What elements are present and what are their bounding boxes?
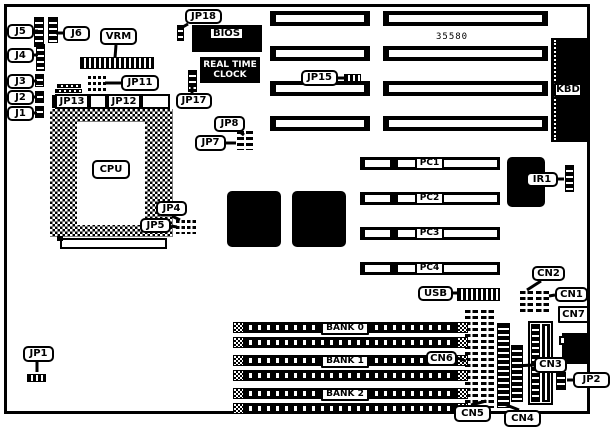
simm-clip-left xyxy=(233,370,244,381)
pci-slot-stripe xyxy=(365,195,390,202)
label-j1: J1 xyxy=(7,106,34,121)
label-jp17: JP17 xyxy=(176,93,212,109)
qfp-chip-1 xyxy=(227,191,281,247)
cpu-top-strip-box-1 xyxy=(89,94,107,109)
isa-slot-stripe xyxy=(276,15,364,22)
simm-clip-right xyxy=(457,322,468,333)
label-jp13: JP13 xyxy=(55,94,89,109)
label-cn1: CN1 xyxy=(555,287,588,302)
simm-clip-right xyxy=(457,370,468,381)
j4-pin-header xyxy=(36,44,45,71)
jp4-header xyxy=(187,220,196,234)
isa-slot-stripe xyxy=(389,15,542,22)
simm-clip-left xyxy=(233,403,244,414)
jp15-header xyxy=(344,74,361,82)
label-jp2: JP2 xyxy=(573,372,610,388)
label-jp15: JP15 xyxy=(301,70,338,86)
simm-clip-right xyxy=(457,355,468,366)
simm-socket-contacts xyxy=(249,406,452,411)
label-usb: USB xyxy=(418,286,453,301)
cn2-block xyxy=(520,291,533,315)
pci-slot-label: PC4 xyxy=(415,262,444,275)
label-cn7: CN7 xyxy=(558,306,589,323)
chipset-part-number: 35580 xyxy=(436,32,480,44)
rtc-label-line1: REAL TIME xyxy=(203,60,257,70)
label-kbd: KBD xyxy=(554,83,582,97)
label-cn4: CN4 xyxy=(504,410,541,427)
pci-slot-stripe xyxy=(398,265,416,272)
label-jp12: JP12 xyxy=(107,94,141,109)
isa-slot-stripe xyxy=(276,85,364,92)
pci-slot-stripe xyxy=(365,265,390,272)
cpu-top-strip-box-3 xyxy=(141,94,170,109)
label-jp18: JP18 xyxy=(185,9,222,24)
pci-slot-stripe xyxy=(398,160,416,167)
label-j3: J3 xyxy=(7,74,34,89)
motherboard-layout-diagram: 35580PC1PC2PC3PC4BANK 0BANK 1BANK 2REAL … xyxy=(0,0,612,431)
pci-slot-stripe xyxy=(398,230,416,237)
label-jp8: JP8 xyxy=(214,116,245,132)
j2-pin-header xyxy=(35,91,44,103)
bank-label-1: BANK 1 xyxy=(321,355,369,368)
label-cn5: CN5 xyxy=(454,405,491,422)
jp7-jp8-header xyxy=(237,131,253,150)
label-cn6: CN6 xyxy=(426,351,457,366)
simm-socket-contacts xyxy=(249,340,452,345)
jp11-header-left xyxy=(88,76,96,92)
label-jp11: JP11 xyxy=(121,75,159,91)
vrm-connector xyxy=(80,57,154,69)
label-jp1: JP1 xyxy=(23,346,54,362)
pci-slot-stripe xyxy=(443,195,497,202)
simm-clip-right xyxy=(457,337,468,348)
isa-slot-stripe xyxy=(276,50,364,57)
rtc-chip: REAL TIMECLOCK xyxy=(200,57,260,83)
pci-slot-stripe xyxy=(365,160,390,167)
label-vrm: VRM xyxy=(100,28,137,45)
j3-pin-header xyxy=(35,74,44,87)
simm-clip-left xyxy=(233,322,244,333)
bank-label-0: BANK 0 xyxy=(321,322,369,335)
cn1-block xyxy=(536,291,549,315)
pci-slot-stripe xyxy=(365,230,390,237)
label-j2: J2 xyxy=(7,90,34,105)
simm-clip-left xyxy=(233,337,244,348)
cn4-connector xyxy=(497,323,510,408)
cn3-connector xyxy=(511,345,523,402)
cap-a xyxy=(57,84,81,88)
jp2-header xyxy=(556,372,566,390)
isa-slot-stripe xyxy=(389,50,542,57)
pci-slot-label: PC2 xyxy=(415,192,444,205)
qfp-chip-2 xyxy=(292,191,346,247)
simm-socket-contacts xyxy=(249,373,452,378)
label-jp5: JP5 xyxy=(140,218,171,233)
j1-pin-header xyxy=(35,106,44,118)
label-jp4: JP4 xyxy=(156,201,187,216)
jp1-header xyxy=(27,374,46,382)
pci-slot-stripe xyxy=(443,160,497,167)
rtc-label-line2: CLOCK xyxy=(213,70,246,80)
isa-slot-stripe xyxy=(389,85,542,92)
isa-slot-stripe xyxy=(276,120,364,127)
pci-slot-stripe xyxy=(443,265,497,272)
j6-pin-header xyxy=(48,17,58,43)
bank-label-2: BANK 2 xyxy=(321,388,369,401)
simm-clip-left xyxy=(233,355,244,366)
label-bios: BIOS xyxy=(209,27,244,40)
simm-clip-right xyxy=(457,388,468,399)
j5-pin-header xyxy=(34,17,44,47)
simm-clip-left xyxy=(233,388,244,399)
ir1-header xyxy=(565,165,574,192)
socket-slot-notch xyxy=(57,236,63,241)
isa-slot-stripe xyxy=(389,120,542,127)
cap-b xyxy=(55,89,82,93)
label-cn3: CN3 xyxy=(534,357,567,373)
pci-slot-stripe xyxy=(443,230,497,237)
label-ir1: IR1 xyxy=(526,172,558,187)
jp18-header xyxy=(177,25,184,41)
label-j4: J4 xyxy=(7,48,34,63)
label-cpu: CPU xyxy=(92,160,130,179)
jp5-header xyxy=(176,220,185,234)
label-j6: J6 xyxy=(63,26,90,41)
socket-slot-below-cpu xyxy=(60,238,167,249)
usb-header xyxy=(457,288,500,301)
pci-slot-stripe xyxy=(398,195,416,202)
cn5-connector xyxy=(481,310,494,408)
label-j5: J5 xyxy=(7,24,34,39)
label-jp7: JP7 xyxy=(195,135,226,151)
pci-slot-label: PC1 xyxy=(415,157,444,170)
label-cn2: CN2 xyxy=(532,266,565,281)
din-connector-notch xyxy=(559,336,566,345)
pci-slot-label: PC3 xyxy=(415,227,444,240)
jp11-header-right xyxy=(98,76,106,92)
jp17-header xyxy=(188,70,197,92)
